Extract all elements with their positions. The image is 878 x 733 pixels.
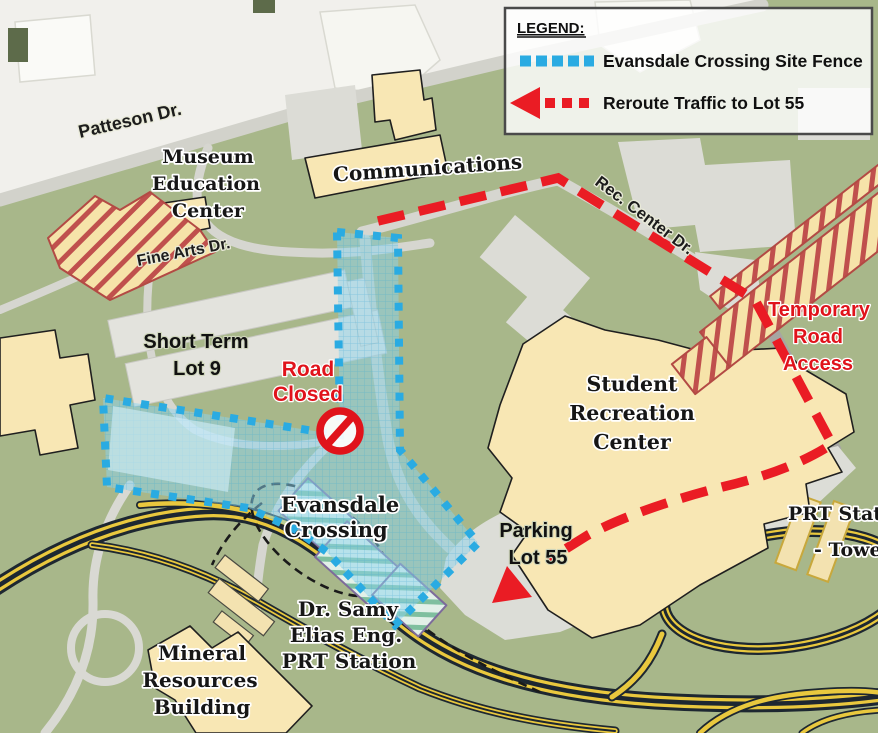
svg-text:Lot 55: Lot 55: [509, 547, 568, 569]
svg-text:Crossing: Crossing: [284, 517, 388, 542]
svg-text:- Tower: - Tower: [814, 539, 878, 561]
svg-text:Road: Road: [793, 326, 843, 348]
svg-text:Center: Center: [172, 200, 245, 222]
svg-text:PRT Station: PRT Station: [788, 503, 878, 525]
no-entry-icon: [320, 411, 360, 451]
svg-text:Resources: Resources: [142, 668, 257, 692]
campus-construction-map: Patteson Dr. Fine Arts Dr. Rec. Center D…: [0, 0, 878, 733]
svg-text:Museum: Museum: [162, 146, 254, 168]
svg-text:Lot 9: Lot 9: [173, 358, 221, 380]
svg-text:Building: Building: [154, 695, 251, 719]
legend-item-reroute-label: Reroute Traffic to Lot 55: [603, 93, 805, 113]
svg-text:Center: Center: [593, 430, 672, 454]
svg-text:Road: Road: [282, 358, 335, 381]
svg-text:Recreation: Recreation: [569, 401, 695, 425]
label-prt-station-samy: Dr. Samy Elias Eng. PRT Station: [282, 597, 417, 673]
svg-text:Access: Access: [783, 353, 853, 375]
legend-title: LEGEND:: [517, 20, 585, 37]
svg-text:Dr. Samy: Dr. Samy: [298, 597, 400, 621]
svg-text:Temporary: Temporary: [768, 299, 871, 321]
svg-text:Closed: Closed: [273, 383, 343, 406]
campus-map-svg: Patteson Dr. Fine Arts Dr. Rec. Center D…: [0, 0, 878, 733]
svg-text:Short Term: Short Term: [143, 331, 248, 353]
svg-text:Mineral: Mineral: [158, 641, 246, 665]
svg-text:Parking: Parking: [499, 520, 572, 542]
svg-text:PRT Station: PRT Station: [282, 649, 417, 673]
svg-text:Elias Eng.: Elias Eng.: [290, 623, 402, 647]
legend-item-fence-label: Evansdale Crossing Site Fence: [603, 51, 863, 71]
legend-box: LEGEND: Evansdale Crossing Site Fence Re…: [505, 8, 872, 134]
svg-text:Student: Student: [587, 372, 678, 396]
svg-text:Evansdale: Evansdale: [281, 492, 400, 517]
svg-text:Education: Education: [152, 173, 260, 195]
label-evansdale-crossing: Evansdale Crossing: [281, 492, 400, 542]
label-mineral-resources: Mineral Resources Building: [142, 641, 257, 719]
building-gray-north-of-communications: [285, 85, 362, 160]
